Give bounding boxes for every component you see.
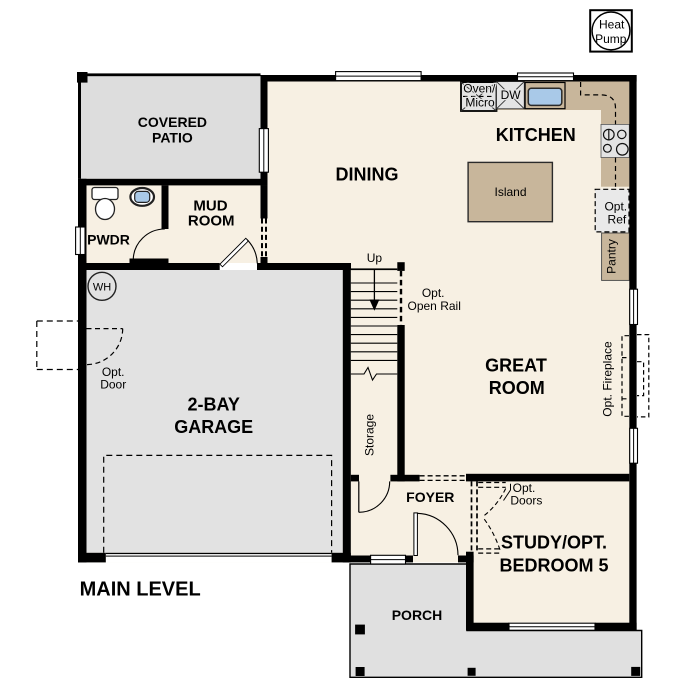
svg-text:ROOM: ROOM: [489, 378, 545, 398]
svg-text:Opt.: Opt.: [422, 286, 445, 300]
svg-text:STUDY/OPT.: STUDY/OPT.: [501, 533, 607, 553]
svg-text:Island: Island: [494, 185, 526, 199]
svg-text:Pump: Pump: [595, 32, 627, 46]
svg-text:DINING: DINING: [336, 164, 399, 184]
svg-text:Heat: Heat: [599, 17, 625, 31]
svg-text:MAIN LEVEL: MAIN LEVEL: [80, 579, 201, 601]
svg-text:GREAT: GREAT: [485, 356, 547, 376]
svg-text:WH: WH: [93, 282, 111, 294]
svg-text:DW: DW: [501, 88, 522, 102]
svg-text:COVERED: COVERED: [138, 114, 207, 130]
svg-text:Door: Door: [100, 378, 126, 392]
svg-text:ROOM: ROOM: [188, 213, 235, 230]
svg-text:Pantry: Pantry: [605, 239, 619, 274]
svg-text:Open Rail: Open Rail: [408, 299, 461, 313]
svg-text:FOYER: FOYER: [406, 489, 454, 505]
svg-text:Up: Up: [367, 251, 383, 265]
svg-text:Oven/: Oven/: [463, 81, 496, 95]
svg-text:2-BAY: 2-BAY: [188, 395, 240, 415]
svg-text:Ref: Ref: [608, 213, 627, 227]
svg-text:Micro: Micro: [465, 96, 495, 110]
svg-text:Storage: Storage: [363, 414, 377, 456]
svg-text:Doors: Doors: [510, 493, 542, 507]
svg-text:Opt. Fireplace: Opt. Fireplace: [601, 341, 615, 417]
svg-text:GARAGE: GARAGE: [174, 417, 253, 437]
svg-text:BEDROOM 5: BEDROOM 5: [499, 556, 608, 576]
svg-text:PWDR: PWDR: [87, 232, 130, 248]
svg-text:PORCH: PORCH: [392, 607, 443, 623]
svg-text:PATIO: PATIO: [152, 130, 193, 146]
svg-text:KITCHEN: KITCHEN: [496, 125, 576, 145]
svg-text:Opt.: Opt.: [604, 200, 627, 214]
